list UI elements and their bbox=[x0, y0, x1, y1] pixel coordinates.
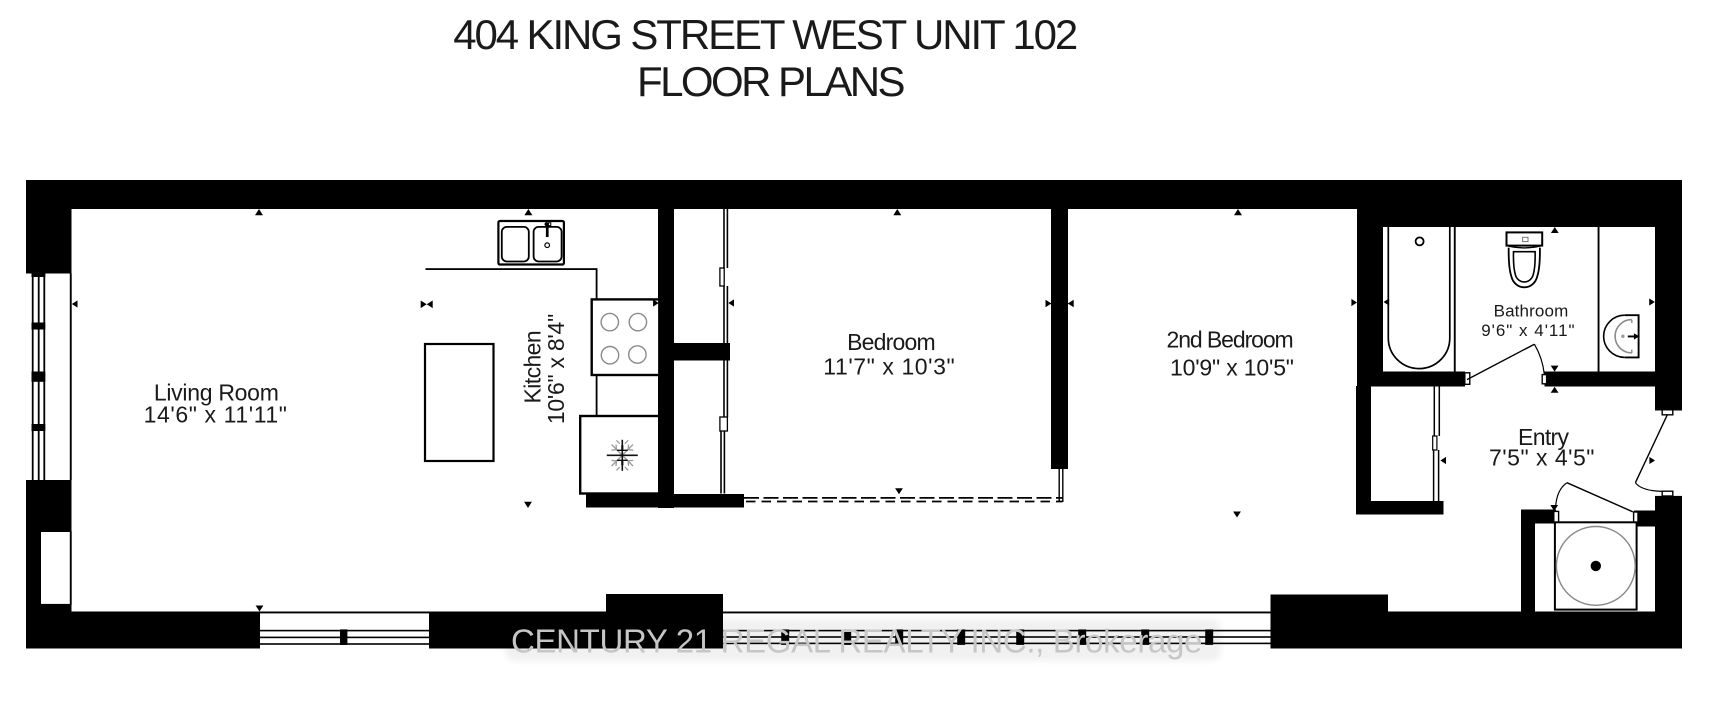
svg-text:9'6" x 4'11": 9'6" x 4'11" bbox=[1481, 321, 1575, 340]
svg-text:CENTURY 21 REGAL REALTY INC.,: CENTURY 21 REGAL REALTY INC., Brokerage bbox=[511, 623, 1202, 660]
svg-text:Bedroom: Bedroom bbox=[847, 329, 935, 355]
svg-text:2nd Bedroom: 2nd Bedroom bbox=[1167, 327, 1293, 353]
svg-text:404 KING STREET WEST UNIT 102: 404 KING STREET WEST UNIT 102 bbox=[453, 11, 1077, 58]
svg-text:7'5" x 4'5": 7'5" x 4'5" bbox=[1489, 445, 1595, 471]
svg-text:FLOOR PLANS: FLOOR PLANS bbox=[637, 58, 905, 105]
svg-text:Bathroom: Bathroom bbox=[1494, 302, 1569, 321]
svg-text:10'9" x 10'5": 10'9" x 10'5" bbox=[1170, 355, 1294, 381]
svg-text:14'6" x 11'11": 14'6" x 11'11" bbox=[144, 401, 288, 427]
svg-text:Kitchen: Kitchen bbox=[520, 331, 546, 404]
svg-text:11'7" x 10'3": 11'7" x 10'3" bbox=[823, 353, 955, 379]
svg-text:10'6" x 8'4": 10'6" x 8'4" bbox=[543, 314, 569, 424]
